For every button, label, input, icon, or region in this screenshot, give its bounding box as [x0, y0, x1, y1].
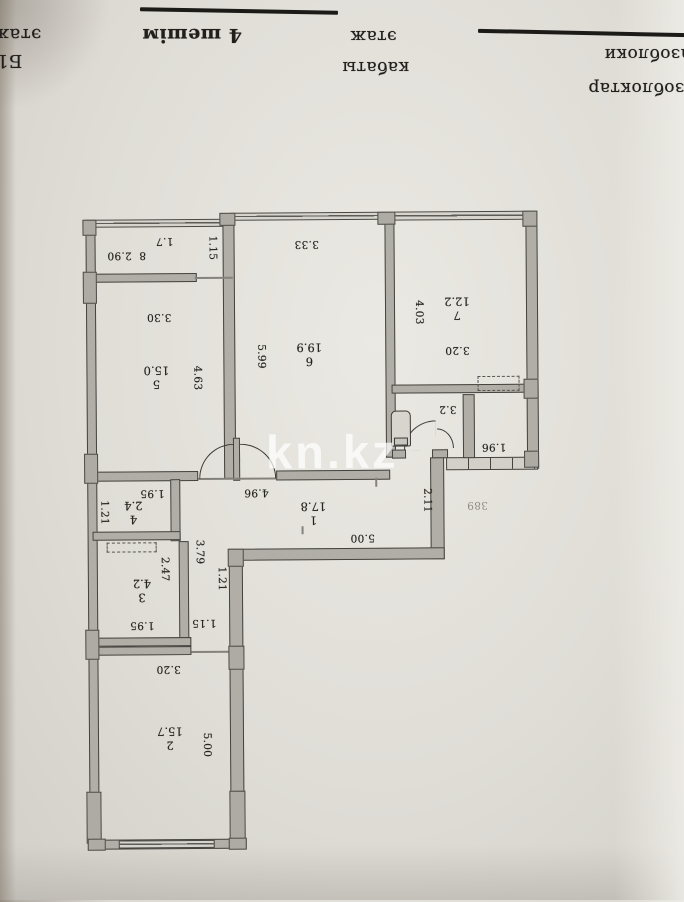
- wall-pilaster: [228, 646, 244, 670]
- wall-segment: [525, 211, 539, 469]
- dimension-label: 4.63: [191, 366, 203, 391]
- wall-segment: [88, 646, 191, 656]
- door-arc: [437, 428, 454, 448]
- wall-segment: [93, 531, 181, 541]
- wall-pilaster: [83, 272, 97, 304]
- wall-pilaster: [219, 213, 235, 226]
- room-label-5: 5 15.0: [144, 363, 170, 392]
- wall-pilaster: [82, 220, 96, 236]
- wall-pilaster: [86, 792, 101, 844]
- door-arc: [199, 444, 234, 479]
- wall-pilaster: [229, 791, 245, 843]
- window: [230, 212, 386, 221]
- floor-plan: kn.kz 8 2.901.71.153.304.635.993.334.033…: [0, 0, 684, 902]
- dimension-label: 5.00: [350, 532, 375, 544]
- door-threshold: [191, 651, 229, 653]
- window: [119, 840, 215, 849]
- dimension-label: 3.20: [445, 344, 470, 356]
- wall-pilaster: [524, 451, 539, 468]
- wall-pilaster: [377, 212, 395, 225]
- dimension-label: 1.21: [98, 500, 110, 525]
- dimension-label: 1.95: [140, 487, 165, 499]
- dimension-label: 3.33: [294, 238, 319, 250]
- wall-pilaster: [229, 838, 247, 850]
- wall-pilaster: [524, 379, 539, 399]
- dimension-label: 1.15: [192, 617, 217, 629]
- room-label-4: 4 2.4: [124, 498, 142, 527]
- wall-pilaster: [85, 630, 99, 660]
- room-label-3: 3 4.2: [133, 576, 151, 605]
- dimension-label: 1.7: [156, 235, 174, 247]
- dimension-label: 389: [467, 499, 488, 511]
- room-label-2: 2 15.7: [157, 724, 183, 753]
- door-threshold: [195, 277, 233, 279]
- dimension-label: 4.96: [244, 487, 269, 499]
- wall-segment: [87, 471, 198, 482]
- dimension-label: 5.99: [255, 344, 267, 369]
- dimension-label: 1.15: [207, 236, 219, 261]
- dimension-label: 3.30: [147, 311, 172, 323]
- wall-segment: [91, 273, 197, 283]
- dimension-label: 2.11: [421, 488, 433, 513]
- dimension-label: 3.20: [156, 663, 181, 675]
- wall-pilaster: [228, 549, 244, 567]
- wall-segment: [179, 541, 190, 646]
- dimension-label: 5.00: [201, 733, 213, 758]
- room-label-1: 1 17.8: [301, 499, 327, 528]
- dimension-label: 3.2: [439, 403, 457, 415]
- scanned-floorplan-photo: { "header": { "edge_floor": "этаж", "edg…: [0, 0, 684, 900]
- room-label-7: 7 12.2: [444, 294, 470, 323]
- wall-pilaster: [522, 211, 537, 227]
- wall-pilaster: [84, 454, 98, 484]
- dimension-label: 1.95: [130, 619, 155, 631]
- dimension-label: 2.47: [159, 557, 171, 582]
- wall-segment: [233, 547, 445, 560]
- wall-pilaster: [88, 839, 106, 851]
- dimension-label: 1.96: [482, 441, 507, 453]
- kn-kz-watermark: kn.kz: [266, 424, 399, 480]
- room-label-6: 6 19.9: [296, 340, 322, 369]
- window: [386, 211, 536, 221]
- dimension-label: 3.79: [194, 540, 206, 565]
- wall-segment: [463, 394, 475, 458]
- window: [86, 219, 230, 228]
- dimension-label: 4.03: [413, 300, 425, 325]
- duct-shaft: [107, 542, 157, 552]
- dimension-label: 1.21: [216, 567, 228, 592]
- dimension-tick: [375, 478, 377, 487]
- dimension-label: 8 2.90: [107, 249, 146, 261]
- duct-shaft: [477, 376, 519, 391]
